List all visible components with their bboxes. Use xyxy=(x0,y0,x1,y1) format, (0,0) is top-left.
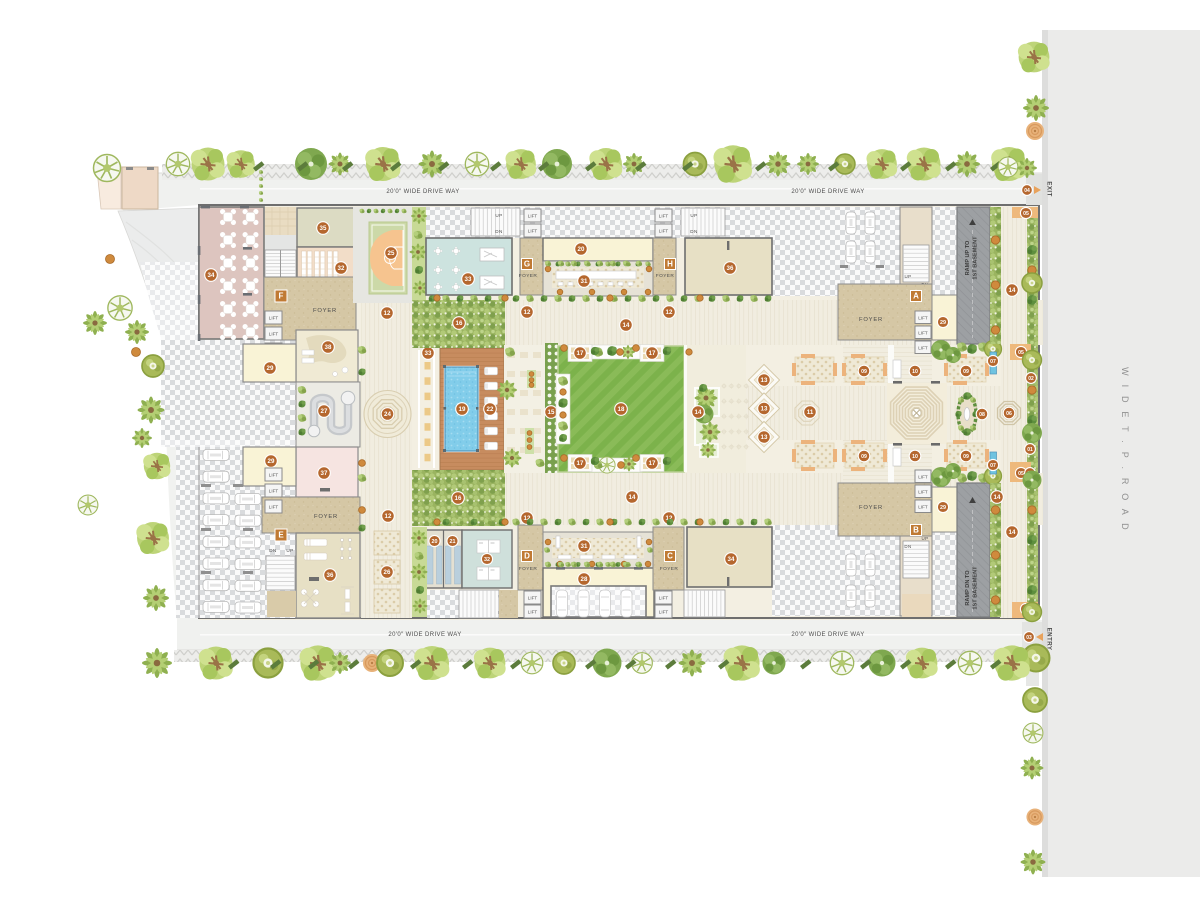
svg-text:09: 09 xyxy=(963,369,969,375)
svg-text:14: 14 xyxy=(1009,287,1016,294)
svg-text:13: 13 xyxy=(761,434,768,441)
svg-text:LIFT: LIFT xyxy=(269,473,279,478)
svg-text:F: F xyxy=(279,292,284,301)
svg-text:05: 05 xyxy=(1023,211,1029,217)
svg-text:20: 20 xyxy=(578,246,585,253)
svg-text:34: 34 xyxy=(728,556,735,563)
svg-text:UP: UP xyxy=(922,536,929,541)
svg-text:LIFT: LIFT xyxy=(918,474,928,479)
svg-text:LIFT: LIFT xyxy=(269,316,279,321)
svg-text:LIFT: LIFT xyxy=(918,345,928,350)
svg-text:14: 14 xyxy=(1009,529,1016,536)
svg-text:20: 20 xyxy=(432,539,438,545)
svg-text:FOYER: FOYER xyxy=(859,317,883,323)
svg-text:02: 02 xyxy=(1028,376,1034,382)
svg-text:14: 14 xyxy=(629,494,636,501)
svg-text:03: 03 xyxy=(1026,635,1032,641)
svg-text:LIFT: LIFT xyxy=(528,214,538,219)
svg-text:C: C xyxy=(667,552,673,561)
svg-text:DN: DN xyxy=(904,544,911,549)
svg-text:21: 21 xyxy=(450,539,456,545)
svg-text:14: 14 xyxy=(623,322,630,329)
svg-text:12: 12 xyxy=(384,310,391,317)
svg-text:LIFT: LIFT xyxy=(659,214,669,219)
svg-text:DN: DN xyxy=(269,548,276,553)
svg-text:UP: UP xyxy=(495,213,502,218)
svg-text:17: 17 xyxy=(577,350,584,357)
svg-text:26: 26 xyxy=(384,569,391,576)
svg-text:29: 29 xyxy=(940,320,946,326)
svg-text:32: 32 xyxy=(484,557,490,563)
svg-text:17: 17 xyxy=(649,460,656,467)
svg-text:FOYER: FOYER xyxy=(314,514,338,520)
svg-text:09: 09 xyxy=(861,454,867,460)
svg-text:FOYER: FOYER xyxy=(656,273,675,279)
svg-text:1ST BASEMENT: 1ST BASEMENT xyxy=(973,236,979,280)
svg-text:W I D E T . P . R O A D: W I D E T . P . R O A D xyxy=(1120,367,1130,533)
svg-text:LIFT: LIFT xyxy=(918,330,928,335)
svg-text:12: 12 xyxy=(385,513,392,520)
svg-text:15: 15 xyxy=(548,409,555,416)
svg-text:14: 14 xyxy=(695,409,702,416)
svg-text:RAMP UP TO: RAMP UP TO xyxy=(965,240,971,275)
svg-text:10: 10 xyxy=(912,454,918,460)
svg-text:25: 25 xyxy=(388,250,395,257)
svg-text:27: 27 xyxy=(321,408,328,415)
svg-text:A: A xyxy=(913,292,919,301)
svg-text:LIFT: LIFT xyxy=(659,610,669,615)
svg-text:28: 28 xyxy=(581,576,588,583)
svg-text:31: 31 xyxy=(581,543,588,550)
svg-text:36: 36 xyxy=(327,572,334,579)
svg-text:01: 01 xyxy=(1027,447,1033,453)
svg-text:20′0″ WIDE DRIVE WAY: 20′0″ WIDE DRIVE WAY xyxy=(386,189,459,195)
svg-text:FOYER: FOYER xyxy=(859,505,883,511)
svg-text:08: 08 xyxy=(979,412,985,418)
svg-text:LIFT: LIFT xyxy=(269,332,279,337)
svg-text:LIFT: LIFT xyxy=(659,596,669,601)
svg-text:07: 07 xyxy=(990,359,996,365)
svg-text:14: 14 xyxy=(994,494,1001,501)
svg-text:LIFT: LIFT xyxy=(528,610,538,615)
svg-text:12: 12 xyxy=(524,309,531,316)
svg-text:12: 12 xyxy=(666,309,673,316)
svg-text:17: 17 xyxy=(649,350,656,357)
svg-text:FOYER: FOYER xyxy=(313,308,337,314)
svg-text:LIFT: LIFT xyxy=(918,504,928,509)
svg-text:LIFT: LIFT xyxy=(269,489,279,494)
svg-text:07: 07 xyxy=(990,463,996,469)
svg-text:09: 09 xyxy=(963,454,969,460)
svg-text:FOYER: FOYER xyxy=(660,566,679,572)
svg-text:FOYER: FOYER xyxy=(519,566,538,572)
svg-text:24: 24 xyxy=(384,411,391,418)
svg-text:22: 22 xyxy=(487,406,494,413)
svg-text:B: B xyxy=(913,526,919,535)
svg-text:31: 31 xyxy=(581,278,588,285)
svg-text:18: 18 xyxy=(618,406,625,413)
svg-text:10: 10 xyxy=(912,369,918,375)
svg-text:UP: UP xyxy=(286,548,293,553)
svg-text:11: 11 xyxy=(807,409,814,416)
svg-text:29: 29 xyxy=(268,458,275,465)
svg-text:33: 33 xyxy=(425,350,432,357)
svg-text:34: 34 xyxy=(208,272,215,279)
svg-text:05: 05 xyxy=(1018,471,1024,477)
svg-text:DN: DN xyxy=(495,229,502,234)
svg-text:16: 16 xyxy=(456,320,463,327)
svg-text:35: 35 xyxy=(320,225,327,232)
svg-text:EXIT: EXIT xyxy=(1046,181,1053,196)
svg-text:DN: DN xyxy=(690,229,697,234)
svg-text:20′0″ WIDE DRIVE WAY: 20′0″ WIDE DRIVE WAY xyxy=(791,632,864,638)
svg-text:13: 13 xyxy=(761,377,768,384)
svg-text:LIFT: LIFT xyxy=(269,505,279,510)
svg-text:G: G xyxy=(524,260,530,269)
svg-text:RAMP DN TO: RAMP DN TO xyxy=(965,570,971,606)
svg-text:17: 17 xyxy=(577,460,584,467)
svg-text:37: 37 xyxy=(321,470,328,477)
svg-text:E: E xyxy=(278,531,284,540)
svg-text:H: H xyxy=(667,260,673,269)
svg-text:33: 33 xyxy=(465,276,472,283)
svg-text:32: 32 xyxy=(338,265,345,272)
svg-text:36: 36 xyxy=(727,265,734,272)
svg-text:FOYER: FOYER xyxy=(519,273,538,279)
svg-text:20′0″ WIDE DRIVE WAY: 20′0″ WIDE DRIVE WAY xyxy=(388,632,461,638)
svg-text:09: 09 xyxy=(861,369,867,375)
svg-text:04: 04 xyxy=(1024,188,1030,194)
svg-text:LIFT: LIFT xyxy=(528,596,538,601)
svg-text:19: 19 xyxy=(459,406,466,413)
svg-text:ENTRY: ENTRY xyxy=(1046,628,1053,651)
svg-text:LIFT: LIFT xyxy=(528,229,538,234)
svg-text:38: 38 xyxy=(325,344,332,351)
svg-text:D: D xyxy=(524,552,530,561)
svg-text:13: 13 xyxy=(761,406,768,413)
svg-text:UP: UP xyxy=(690,213,697,218)
svg-text:LIFT: LIFT xyxy=(659,229,669,234)
svg-text:06: 06 xyxy=(1006,411,1012,417)
svg-text:LIFT: LIFT xyxy=(918,315,928,320)
svg-text:20′0″ WIDE DRIVE WAY: 20′0″ WIDE DRIVE WAY xyxy=(791,189,864,195)
svg-text:29: 29 xyxy=(940,505,946,511)
svg-text:1ST BASEMENT: 1ST BASEMENT xyxy=(973,566,979,610)
svg-text:LIFT: LIFT xyxy=(918,489,928,494)
svg-text:16: 16 xyxy=(455,495,462,502)
svg-text:29: 29 xyxy=(267,365,274,372)
svg-text:UP: UP xyxy=(905,274,912,279)
